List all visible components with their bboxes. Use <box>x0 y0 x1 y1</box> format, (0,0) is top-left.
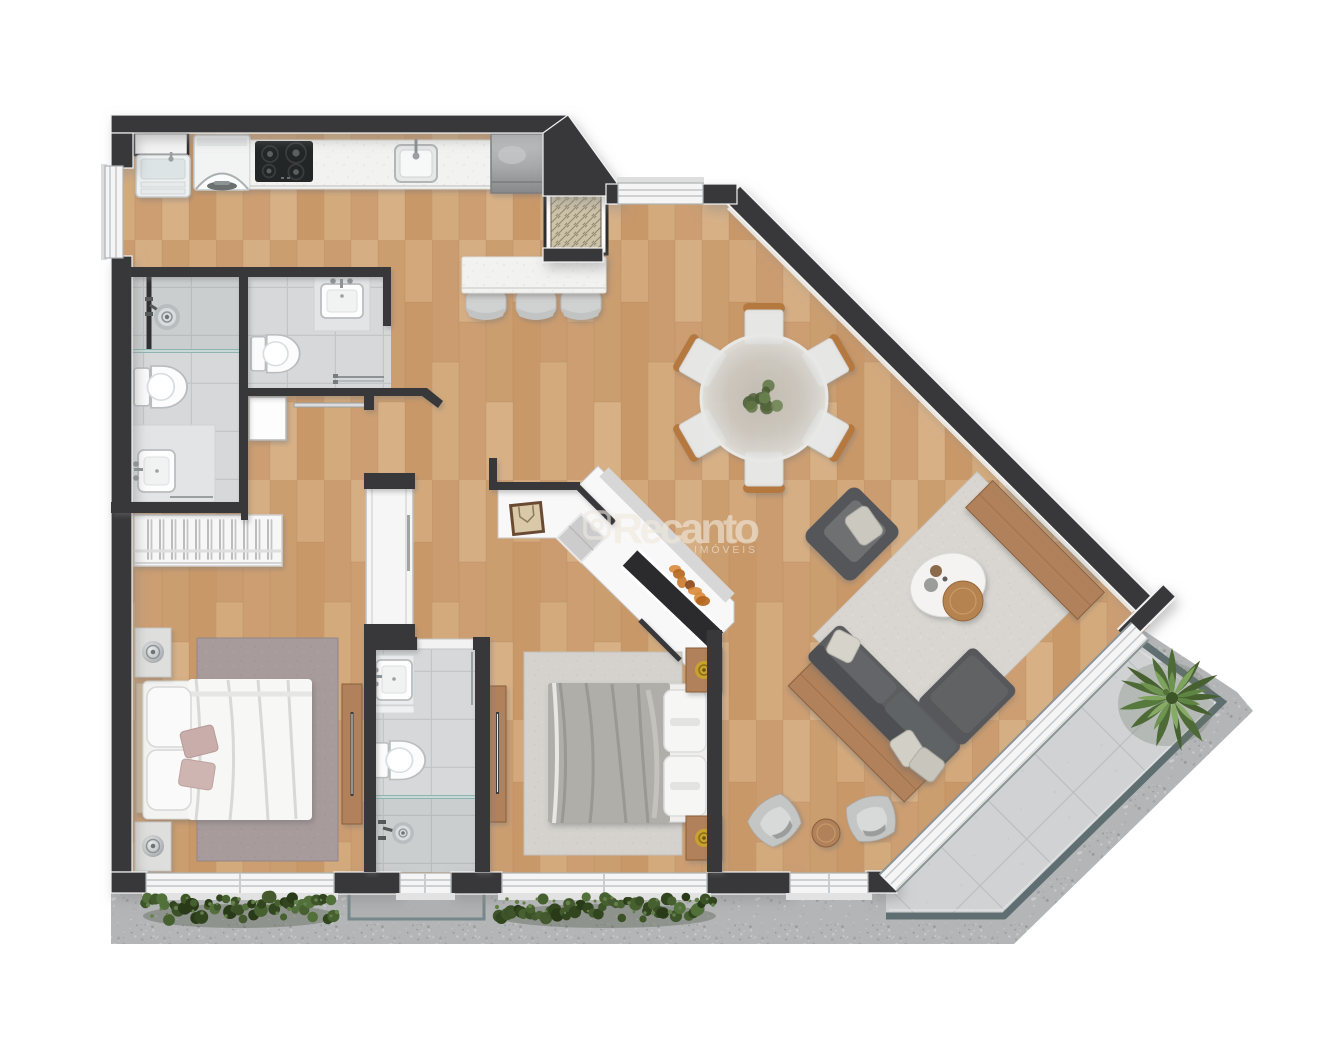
svg-text:IMÓVEIS: IMÓVEIS <box>694 543 759 556</box>
